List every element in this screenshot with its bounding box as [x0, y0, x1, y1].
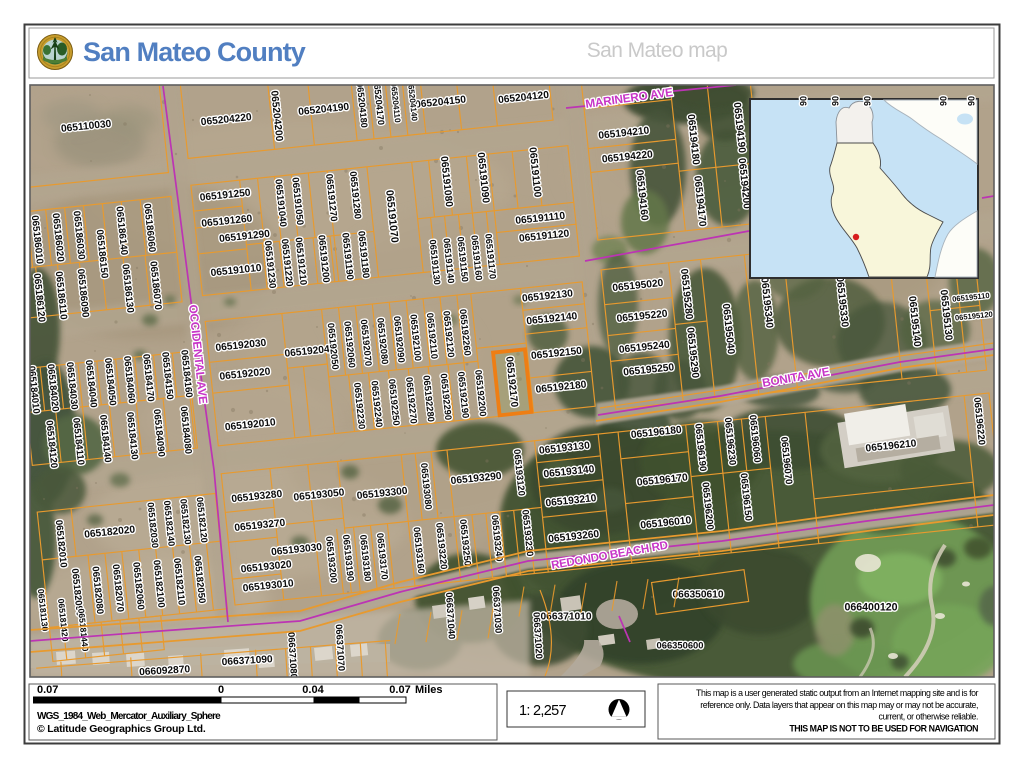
svg-text:06: 06 — [966, 96, 976, 106]
svg-text:0.04: 0.04 — [302, 684, 324, 696]
svg-text:06: 06 — [830, 96, 840, 106]
svg-text:066350600: 066350600 — [657, 639, 704, 650]
svg-text:reference only. Data layers th: reference only. Data layers that appear … — [700, 700, 978, 710]
svg-text:© Latitude Geographics Group L: © Latitude Geographics Group Ltd. — [37, 723, 206, 735]
svg-text:066350610: 066350610 — [673, 589, 724, 600]
svg-text:06: 06 — [862, 96, 872, 106]
svg-text:current, or otherwise reliable: current, or otherwise reliable. — [879, 712, 978, 722]
svg-text:0: 0 — [218, 684, 224, 696]
svg-text:This map is a user generated s: This map is a user generated static outp… — [696, 688, 978, 698]
svg-text:0.07: 0.07 — [37, 684, 58, 696]
svg-text:06: 06 — [938, 96, 948, 106]
svg-text:San Mateo map: San Mateo map — [587, 39, 727, 62]
svg-text:San Mateo County: San Mateo County — [83, 37, 306, 67]
svg-text:Miles: Miles — [415, 684, 443, 696]
svg-text:WGS_1984_Web_Mercator_Auxiliar: WGS_1984_Web_Mercator_Auxiliary_Sphere — [37, 711, 221, 722]
svg-text:066400120: 066400120 — [844, 601, 897, 613]
svg-text:THIS MAP IS NOT TO BE USED FOR: THIS MAP IS NOT TO BE USED FOR NAVIGATIO… — [789, 723, 978, 733]
svg-text:06: 06 — [798, 96, 808, 106]
svg-text:0.07: 0.07 — [389, 684, 410, 696]
svg-text:1: 2,257: 1: 2,257 — [519, 703, 566, 719]
